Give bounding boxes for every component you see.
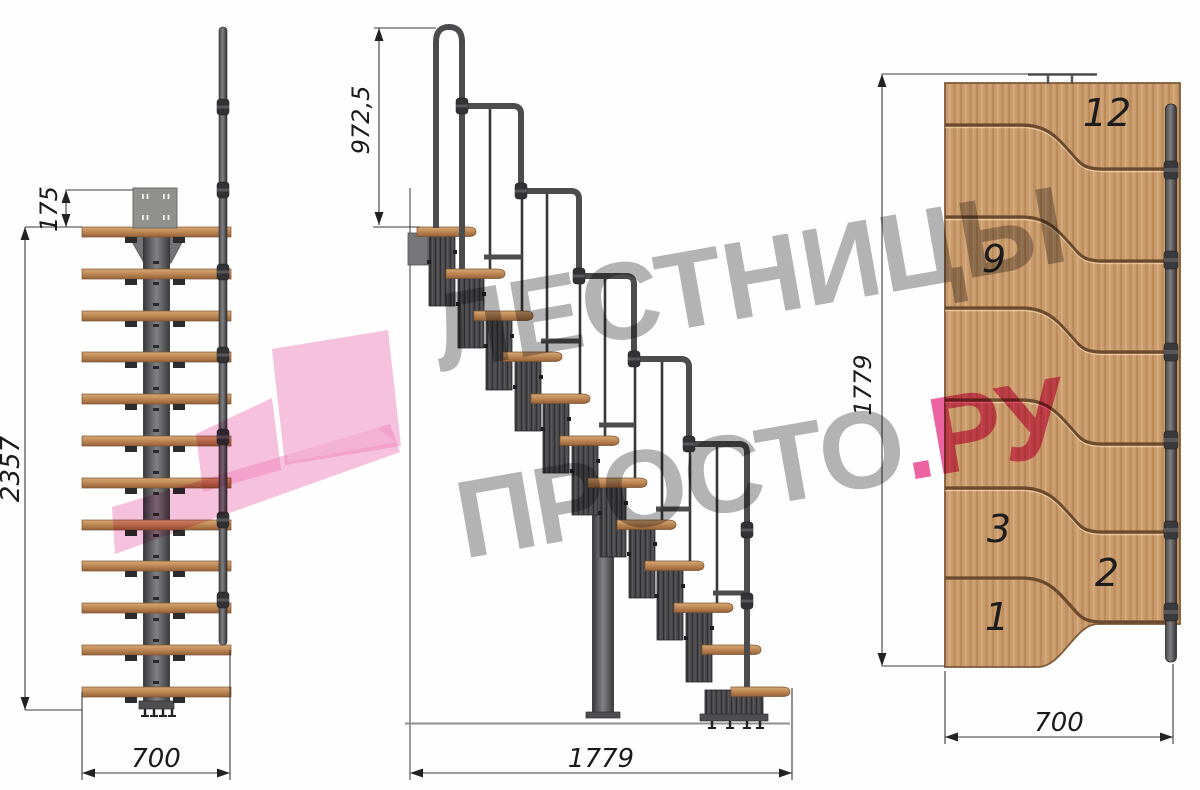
plan-step-9: 9 (982, 237, 1006, 281)
front-wall-plate (133, 188, 177, 228)
dim-side-rail-height: 972,5 (347, 86, 375, 155)
front-handrail-pole (219, 27, 227, 645)
dim-front-top-offset: 175 (35, 186, 63, 232)
dim-plan-width: 700 (1034, 708, 1084, 738)
plan-step-1: 1 (985, 595, 1009, 639)
dim-plan-length: 1779 (849, 354, 877, 415)
staircase-drawing: 175 2357 700 (0, 0, 1200, 790)
side-wall-plate (408, 233, 428, 265)
plan-view: 12 9 3 2 1 1779 700 (849, 74, 1180, 744)
plan-step-3: 3 (987, 507, 1011, 551)
front-view: 175 2357 700 (0, 27, 231, 780)
dim-front-width: 700 (131, 744, 181, 774)
plan-step-12: 12 (1083, 91, 1131, 135)
plan-step-2: 2 (1095, 551, 1119, 595)
dim-front-height: 2357 (0, 435, 26, 502)
dim-side-length: 1779 (568, 744, 634, 774)
front-base-plate (139, 701, 174, 709)
side-view: 972,5 1779 (347, 27, 792, 780)
side-step-modules (427, 236, 714, 682)
plan-handrail (1166, 104, 1177, 662)
technical-drawing-stage: 175 2357 700 (0, 0, 1200, 790)
